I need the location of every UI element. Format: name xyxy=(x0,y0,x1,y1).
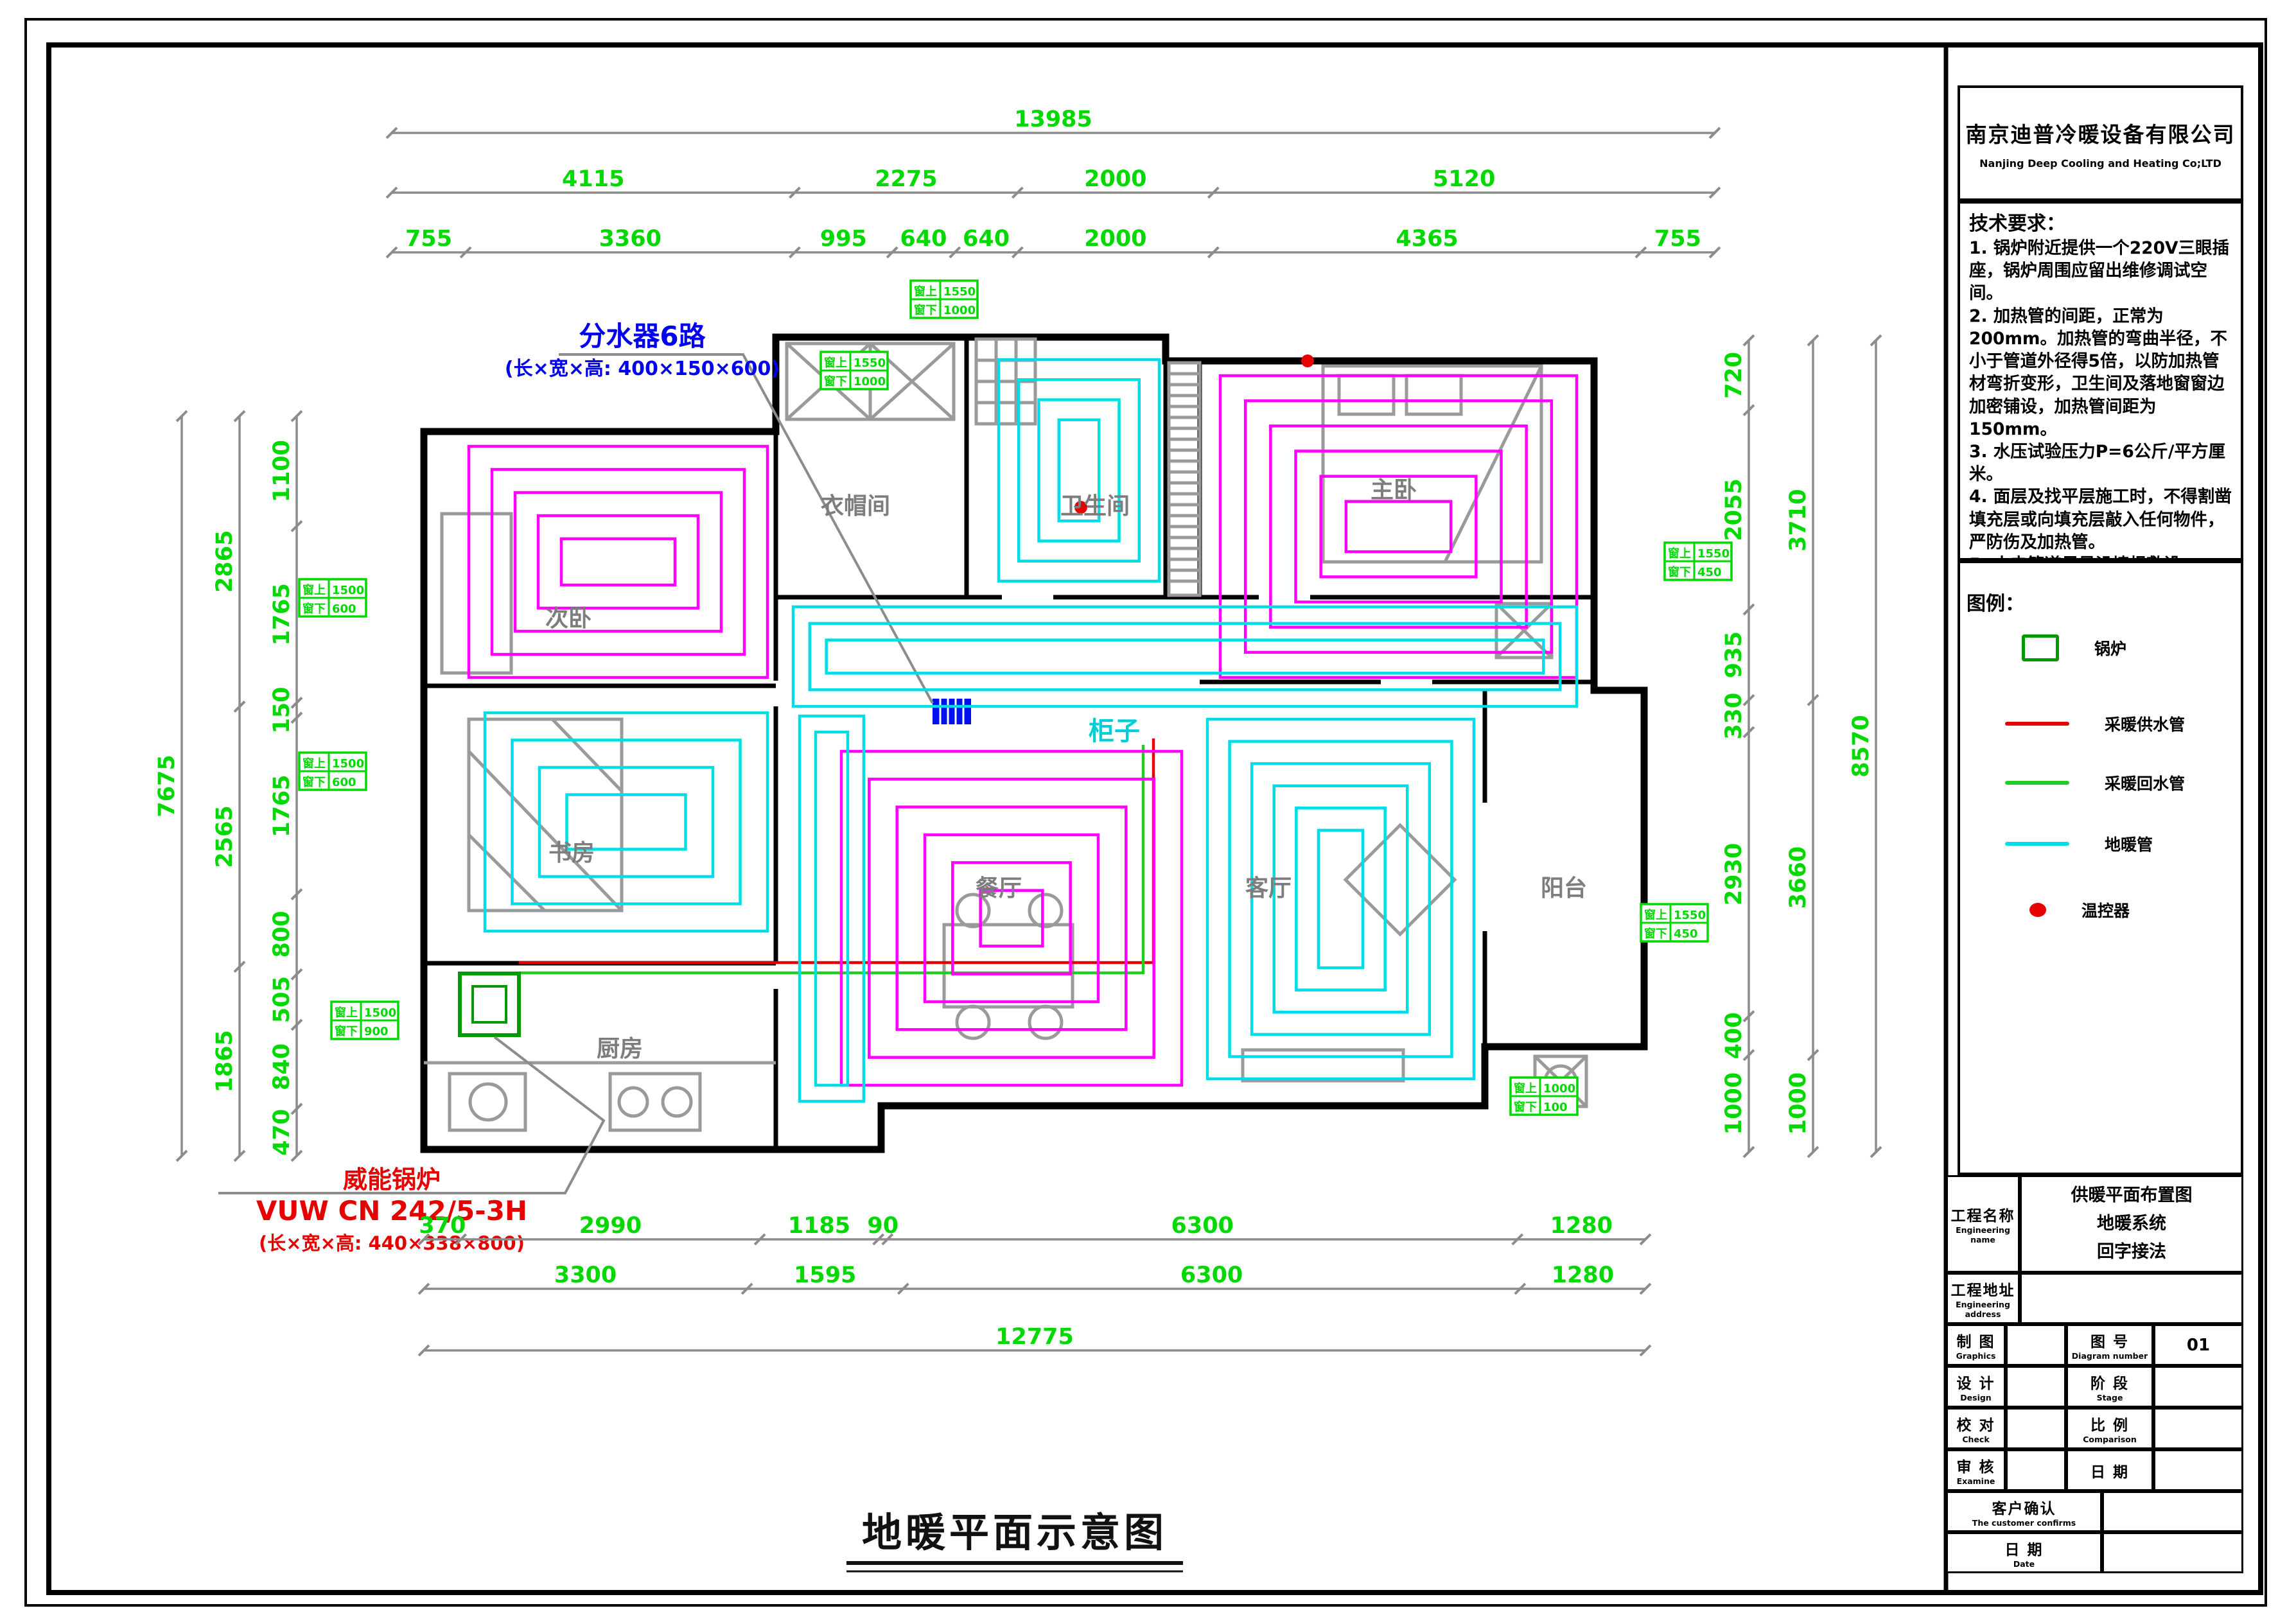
dimension-label: 150 xyxy=(269,686,295,733)
window-tag-label: 窗上 xyxy=(335,1006,358,1020)
legend-return-line-icon xyxy=(2005,781,2069,785)
check-value xyxy=(2006,1408,2066,1449)
dimension-label: 7675 xyxy=(154,755,180,817)
dimension-label: 935 xyxy=(1721,631,1747,678)
interior-walls xyxy=(424,337,1594,1149)
window-tag-value: 100 xyxy=(1543,1101,1568,1114)
dimension-label: 2865 xyxy=(212,530,238,593)
heating-coil xyxy=(1346,502,1451,552)
window-tag-label: 窗上 xyxy=(302,583,326,597)
label-cn: 审 核 xyxy=(1956,1454,1995,1476)
label-en: The customer confirms xyxy=(1972,1518,2076,1528)
window-tag-label: 窗上 xyxy=(824,356,847,370)
dimension-label: 3710 xyxy=(1785,489,1811,551)
legend-label: 地暖管 xyxy=(2105,832,2153,855)
boiler-label: 威能锅炉 xyxy=(343,1166,441,1194)
company-title-box: 南京迪普冷暖设备有限公司 Nanjing Deep Cooling and He… xyxy=(1958,85,2243,201)
examine-value xyxy=(2006,1449,2066,1491)
window-tag-value: 1550 xyxy=(1674,909,1706,922)
window-tag-value: 600 xyxy=(332,602,356,616)
window-tag-value: 900 xyxy=(364,1025,389,1038)
dimension-label: 720 xyxy=(1721,352,1747,399)
window-tag-value: 1000 xyxy=(943,304,976,317)
dimension-label: 2275 xyxy=(875,166,937,192)
thermostat-icon xyxy=(1301,354,1314,367)
heating-coil xyxy=(1296,451,1502,602)
dimension-label: 2990 xyxy=(579,1213,642,1239)
dimension-label: 505 xyxy=(269,976,295,1023)
heating-coil xyxy=(841,751,1182,1085)
project-address-label: 工程地址 Engineering address xyxy=(1946,1273,2020,1324)
graphics-label: 制 图 Graphics xyxy=(1946,1324,2006,1366)
dimension-label: 6300 xyxy=(1180,1262,1243,1288)
project-name-label: 工程名称 Engineering name xyxy=(1946,1175,2020,1273)
label-en: Engineering name xyxy=(1948,1225,2018,1244)
heating-coil xyxy=(513,740,740,904)
window-tag-value: 450 xyxy=(1674,927,1698,941)
dimension-label: 12775 xyxy=(995,1324,1074,1350)
label-cn: 校 对 xyxy=(1956,1413,1995,1435)
dimension-label: 90 xyxy=(867,1213,898,1239)
manifold-size-label: (长×宽×高: 400×150×600) xyxy=(505,358,780,380)
window-tag-value: 1550 xyxy=(943,285,976,299)
heating-coil xyxy=(485,713,767,931)
project-name-line: 回字接法 xyxy=(2097,1238,2166,1266)
dimension-label: 8570 xyxy=(1848,715,1874,777)
legend-label: 采暖供水管 xyxy=(2105,712,2185,735)
company-name-cn: 南京迪普冷暖设备有限公司 xyxy=(1966,118,2236,148)
window-tag-label: 窗上 xyxy=(1514,1081,1537,1096)
label-cn: 日 期 xyxy=(2004,1537,2043,1559)
boiler-model-label: VUW CN 242/5-3H xyxy=(256,1195,527,1227)
furniture xyxy=(424,339,1586,1130)
dimension-label: 400 xyxy=(1721,1012,1747,1059)
diagram-number-value: 01 xyxy=(2153,1324,2243,1366)
dimension-label: 2055 xyxy=(1721,478,1747,541)
label-en: Check xyxy=(1962,1435,1989,1444)
dimension-label: 1765 xyxy=(269,583,295,645)
date-row-value xyxy=(2153,1449,2243,1491)
label-en: Engineering address xyxy=(1948,1300,2018,1319)
label-cn: 制 图 xyxy=(1956,1329,1995,1351)
window-tag-label: 窗下 xyxy=(302,775,326,789)
window-tag-label: 窗上 xyxy=(302,756,326,771)
room-label: 餐厅 xyxy=(976,875,1022,902)
heating-coil xyxy=(827,640,1544,674)
drawing-title: 地暖平面示意图 xyxy=(862,1509,1168,1556)
heating-coil xyxy=(897,807,1126,1030)
examine-label: 审 核 Examine xyxy=(1946,1449,2006,1491)
window-tag-value: 450 xyxy=(1697,566,1722,579)
room-label: 卫生间 xyxy=(1060,493,1130,520)
label-cn: 日 期 xyxy=(2090,1460,2129,1481)
dimension-label: 3360 xyxy=(599,226,662,252)
room-label: 衣帽间 xyxy=(821,493,890,520)
dimension-label: 1100 xyxy=(269,440,295,502)
legend-supply-line-icon xyxy=(2005,722,2069,726)
legend-boiler-icon xyxy=(2022,634,2059,661)
dimension-label: 1280 xyxy=(1550,1213,1613,1239)
dimension-label: 840 xyxy=(269,1043,295,1090)
dimension-label: 2000 xyxy=(1084,166,1146,192)
design-value xyxy=(2006,1366,2066,1408)
dimension-label: 4115 xyxy=(562,166,624,192)
heating-coil xyxy=(492,469,744,654)
heating-coil xyxy=(999,360,1159,581)
label-cn: 工程地址 xyxy=(1951,1278,2015,1300)
label-cn: 客户确认 xyxy=(1992,1496,2056,1518)
dimension-label: 800 xyxy=(269,911,295,957)
tech-requirements-box: 技术要求： 1. 锅炉附近提供一个220V三眼插座，锅炉周围应留出维修调试空间。… xyxy=(1958,201,2243,561)
window-tag-value: 1550 xyxy=(854,356,886,370)
dimension-label: 6300 xyxy=(1171,1213,1233,1239)
legend-floor-pipe-icon xyxy=(2005,842,2069,846)
date-label: 日 期 Date xyxy=(1946,1532,2102,1573)
window-tag-label: 窗下 xyxy=(824,374,847,389)
graphics-value xyxy=(2006,1324,2066,1366)
scale-value xyxy=(2153,1408,2243,1449)
floor-plan-canvas: 分水器6路 (长×宽×高: 400×150×600) 威能锅炉 VUW CN 2… xyxy=(0,0,2287,1624)
dimension-label: 1765 xyxy=(269,774,295,837)
dimension-label: 640 xyxy=(900,226,947,252)
dimension-label: 2000 xyxy=(1084,226,1146,252)
dimension-label: 4365 xyxy=(1396,226,1458,252)
room-label: 客厅 xyxy=(1245,875,1292,902)
company-name-en: Nanjing Deep Cooling and Heating Co;LTD xyxy=(1979,157,2221,170)
room-label: 次卧 xyxy=(545,606,591,632)
stage-value xyxy=(2153,1366,2243,1408)
heating-coil xyxy=(816,732,848,1085)
label-en: Design xyxy=(1960,1393,1991,1402)
dimension-label: 755 xyxy=(405,226,452,252)
heating-coil xyxy=(793,607,1577,706)
window-tag-label: 窗下 xyxy=(1668,565,1691,579)
window-tag-label: 窗下 xyxy=(914,303,937,317)
window-tag-label: 窗下 xyxy=(302,602,326,616)
dimension-label: 1865 xyxy=(212,1030,238,1092)
legend-box: 图例： 锅炉 采暖供水管 采暖回水管 地暖管 温控器 xyxy=(1958,561,2243,1175)
window-tag-value: 600 xyxy=(332,776,356,789)
dimension-label: 370 xyxy=(419,1213,466,1239)
dimension-label: 2930 xyxy=(1721,843,1747,905)
tech-requirements-heading: 技术要求： xyxy=(1969,211,2232,237)
label-en: Graphics xyxy=(1956,1351,1996,1361)
drawing-sheet: 分水器6路 (长×宽×高: 400×150×600) 威能锅炉 VUW CN 2… xyxy=(0,0,2287,1624)
heating-coil xyxy=(800,716,864,1101)
dimension-label: 640 xyxy=(963,226,1010,252)
dimension-label: 1000 xyxy=(1721,1072,1747,1135)
dimension-label: 1000 xyxy=(1785,1072,1811,1135)
window-tag-value: 1500 xyxy=(332,757,364,771)
label-en: Comparison xyxy=(2083,1435,2137,1444)
check-label: 校 对 Check xyxy=(1946,1408,2006,1449)
customer-confirm-label: 客户确认 The customer confirms xyxy=(1946,1491,2102,1532)
design-label: 设 计 Design xyxy=(1946,1366,2006,1408)
heating-coil xyxy=(1296,808,1385,990)
tech-requirement-item: 2. 加热管的间距，正常为200mm。加热管的弯曲半径，不小于管道外径得5倍，以… xyxy=(1969,305,2232,441)
heating-pipes xyxy=(519,738,1153,973)
dimension-label: 2565 xyxy=(212,805,238,868)
label-cn: 比 例 xyxy=(2090,1413,2129,1435)
legend-thermostat-icon xyxy=(2029,903,2046,917)
boiler-symbol xyxy=(460,974,519,1035)
dimension-label: 755 xyxy=(1654,226,1701,252)
dimension-label: 3300 xyxy=(554,1262,617,1288)
window-tag-label: 窗下 xyxy=(1644,927,1667,941)
tech-requirement-item: 1. 锅炉附近提供一个220V三眼插座，锅炉周围应留出维修调试空间。 xyxy=(1969,237,2232,305)
dimension-label: 330 xyxy=(1721,693,1747,740)
title-block: 工程名称 Engineering name 供暖平面布置图 地暖系统 回字接法 … xyxy=(1946,1175,2243,1573)
room-label: 主卧 xyxy=(1371,477,1417,503)
room-label: 阳台 xyxy=(1541,875,1587,902)
window-tag-value: 1000 xyxy=(1543,1082,1575,1096)
project-name-line: 供暖平面布置图 xyxy=(2071,1182,2193,1210)
cabinet-label: 柜子 xyxy=(1089,717,1140,746)
label-cn: 工程名称 xyxy=(1951,1203,2015,1225)
customer-confirm-value xyxy=(2102,1491,2243,1532)
diagram-number-label: 图 号 Diagram number xyxy=(2066,1324,2153,1366)
window-tag-label: 窗下 xyxy=(1514,1100,1537,1114)
legend-label: 温控器 xyxy=(2081,898,2130,921)
date-value xyxy=(2102,1532,2243,1573)
stage-label: 阶 段 Stage xyxy=(2066,1366,2153,1408)
dimension-label: 13985 xyxy=(1014,107,1092,132)
window-tag-value: 1500 xyxy=(364,1006,396,1020)
room-label: 书房 xyxy=(548,840,595,866)
date-row-label: 日 期 xyxy=(2066,1449,2153,1491)
window-tag-label: 窗上 xyxy=(1644,908,1667,922)
project-address-value xyxy=(2020,1273,2243,1324)
room-label: 厨房 xyxy=(597,1036,643,1062)
label-en: Date xyxy=(2013,1559,2035,1569)
dimension-label: 1280 xyxy=(1552,1262,1614,1288)
window-tag-label: 窗下 xyxy=(335,1024,358,1038)
dimension-label: 5120 xyxy=(1433,166,1495,192)
tech-requirement-item: 3. 水压试验压力P=6公斤/平方厘米。 xyxy=(1969,441,2232,485)
manifold-symbol xyxy=(933,699,971,724)
label-cn: 图 号 xyxy=(2090,1329,2129,1351)
scale-label: 比 例 Comparison xyxy=(2066,1408,2153,1449)
legend-label: 锅炉 xyxy=(2094,636,2126,659)
value: 01 xyxy=(2187,1336,2210,1355)
window-tag-label: 窗上 xyxy=(914,284,937,299)
dimension-label: 1185 xyxy=(788,1213,850,1239)
label-en: Examine xyxy=(1957,1476,1995,1486)
dimension-label: 995 xyxy=(820,226,867,252)
dimension-label: 1595 xyxy=(794,1262,856,1288)
label-en: Stage xyxy=(2097,1393,2123,1402)
window-tag-label: 窗上 xyxy=(1668,546,1691,561)
label-cn: 设 计 xyxy=(1956,1371,1995,1393)
label-en: Diagram number xyxy=(2072,1351,2148,1361)
exterior-walls xyxy=(424,337,1644,1149)
sheet-border xyxy=(26,19,2266,1605)
heating-coil xyxy=(1274,786,1408,1013)
project-name-value: 供暖平面布置图 地暖系统 回字接法 xyxy=(2020,1175,2243,1273)
dimension-label: 470 xyxy=(269,1109,295,1156)
legend-label: 采暖回水管 xyxy=(2105,771,2185,794)
project-name-line: 地暖系统 xyxy=(2097,1210,2166,1238)
legend-heading: 图例： xyxy=(1967,588,2024,616)
heating-coil xyxy=(1319,830,1363,968)
boiler-size-label: (长×宽×高: 440×338×800) xyxy=(259,1232,525,1254)
dimension-label: 3660 xyxy=(1785,846,1811,909)
label-cn: 阶 段 xyxy=(2090,1371,2129,1393)
window-tag-value: 1500 xyxy=(332,584,364,597)
heating-coil xyxy=(869,779,1153,1057)
window-tag-value: 1550 xyxy=(1697,547,1730,561)
heating-coil xyxy=(561,539,675,585)
window-tag-value: 1000 xyxy=(854,375,886,389)
manifold-label: 分水器6路 xyxy=(579,320,706,352)
tech-requirement-item: 4. 面层及找平层施工时，不得割凿填充层或向填充层敲入任何物件，严防伤及加热管。 xyxy=(1969,485,2232,554)
